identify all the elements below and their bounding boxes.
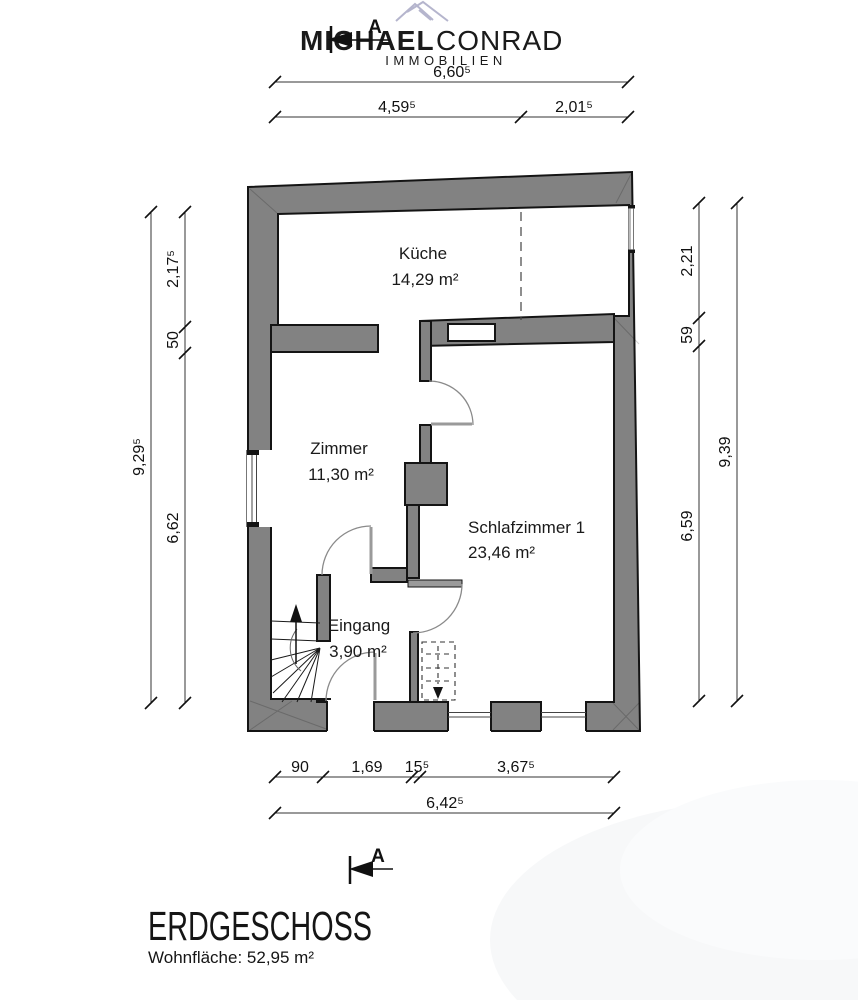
dim-bottom-seg1: 90 <box>291 759 309 776</box>
floorplan-page: MICHAEL CONRAD IMMOBILIEN A 6,60⁵ 4,59⁵ … <box>0 0 858 1000</box>
room-kueche-area: 14,29 m² <box>391 270 458 289</box>
logo: MICHAEL CONRAD IMMOBILIEN <box>300 2 563 68</box>
dim-bottom-seg2: 1,69 <box>351 759 382 776</box>
dim-top-total: 6,60⁵ <box>433 64 471 81</box>
wall-corridor-upper-stub <box>420 321 431 381</box>
dim-top-seg2: 2,01⁵ <box>555 99 593 116</box>
window-bottom-1 <box>448 700 491 733</box>
section-marker-bottom: A <box>349 846 393 884</box>
stair-up-arrow-icon <box>290 604 302 622</box>
window-bottom-2 <box>541 700 586 733</box>
wall-pass-opening <box>448 324 495 341</box>
room-kueche-name: Küche <box>399 244 447 263</box>
ladder-down-arrow-icon <box>433 687 443 699</box>
room-schlafzimmer-area: 23,46 m² <box>468 543 535 562</box>
door-zimmer-eingang <box>322 526 371 575</box>
room-zimmer-name: Zimmer <box>310 439 368 458</box>
dim-bottom-seg4: 3,67⁵ <box>497 759 535 776</box>
dim-left-seg3: 6,62 <box>165 512 182 543</box>
wall-corridor-lower-stub <box>420 425 431 464</box>
logo-name-light: CONRAD <box>436 25 563 56</box>
dim-right-seg3: 6,59 <box>679 510 696 541</box>
room-eingang-name: Eingang <box>328 616 390 635</box>
entry-door-opening <box>327 700 374 733</box>
section-arrow-icon <box>349 861 373 877</box>
dim-bottom-total: 6,42⁵ <box>426 795 464 812</box>
dim-right-seg1: 2,21 <box>679 245 696 276</box>
staircase <box>271 604 320 702</box>
dim-left-seg2: 50 <box>165 331 182 349</box>
dim-left-seg1: 2,17⁵ <box>165 250 182 288</box>
wall-zimmer-top <box>271 325 378 352</box>
door-eingang-schlafzimmer <box>408 580 462 633</box>
section-label-bottom: A <box>371 846 385 867</box>
room-labels: Küche 14,29 m² Zimmer 11,30 m² Schlafzim… <box>308 244 585 661</box>
dim-left-total: 9,29⁵ <box>131 438 148 476</box>
chimney-block <box>405 463 447 505</box>
dim-top-seg1: 4,59⁵ <box>378 99 416 116</box>
room-eingang-area: 3,90 m² <box>329 642 387 661</box>
section-label-top: A <box>368 17 382 38</box>
wall-eingang-right-stub <box>410 632 418 702</box>
dim-right-total: 9,39 <box>717 436 734 467</box>
wall-below-chimney <box>407 505 419 578</box>
loft-ladder-symbol <box>422 642 455 700</box>
window-left <box>245 450 273 527</box>
floorplan-drawing: MICHAEL CONRAD IMMOBILIEN A 6,60⁵ 4,59⁵ … <box>0 0 858 1000</box>
room-schlafzimmer-name: Schlafzimmer 1 <box>468 518 585 537</box>
title-block: ERDGESCHOSS Wohnfläche: 52,95 m² <box>148 903 372 967</box>
dim-bottom-seg3: 15⁵ <box>405 759 429 776</box>
room-zimmer-area: 11,30 m² <box>308 465 374 484</box>
door-corridor-schlafzimmer <box>429 381 473 425</box>
living-area-label: Wohnfläche: 52,95 m² <box>148 948 314 967</box>
dimension-labels: 6,60⁵ 4,59⁵ 2,01⁵ 90 1,69 15⁵ 3,67⁵ 6,42… <box>131 64 734 812</box>
mountains-icon <box>396 2 448 21</box>
wall-eingang-top <box>371 568 407 582</box>
floor-title: ERDGESCHOSS <box>148 903 372 949</box>
dim-right-seg2: 59 <box>679 326 696 344</box>
window-right-top <box>629 205 636 253</box>
